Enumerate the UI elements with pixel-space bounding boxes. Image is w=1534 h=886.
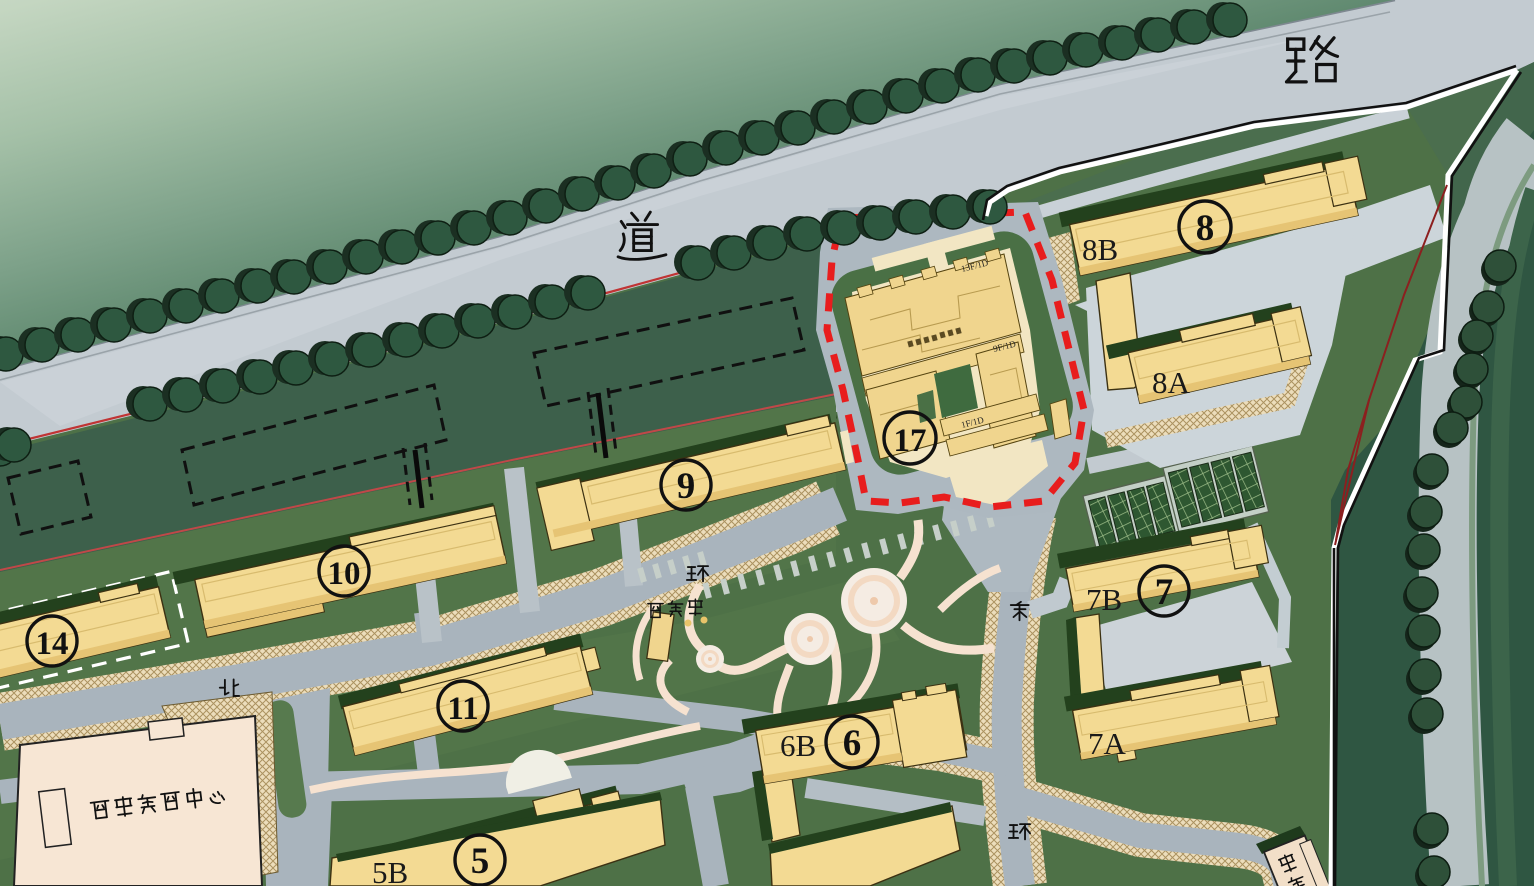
- svg-text:17: 17: [894, 423, 927, 459]
- svg-text:6B: 6B: [780, 728, 816, 763]
- svg-text:6: 6: [843, 723, 862, 764]
- svg-text:8: 8: [1196, 208, 1215, 249]
- svg-text:7: 7: [1155, 572, 1174, 613]
- svg-text:11: 11: [447, 691, 478, 727]
- svg-text:5B: 5B: [372, 855, 408, 886]
- svg-text:7A: 7A: [1088, 726, 1127, 761]
- svg-text:5: 5: [471, 841, 490, 882]
- svg-text:8A: 8A: [1152, 365, 1191, 400]
- svg-text:7B: 7B: [1086, 582, 1122, 617]
- svg-text:8B: 8B: [1082, 232, 1118, 267]
- svg-text:10: 10: [328, 556, 361, 592]
- svg-text:14: 14: [36, 626, 69, 662]
- svg-text:9: 9: [677, 466, 696, 507]
